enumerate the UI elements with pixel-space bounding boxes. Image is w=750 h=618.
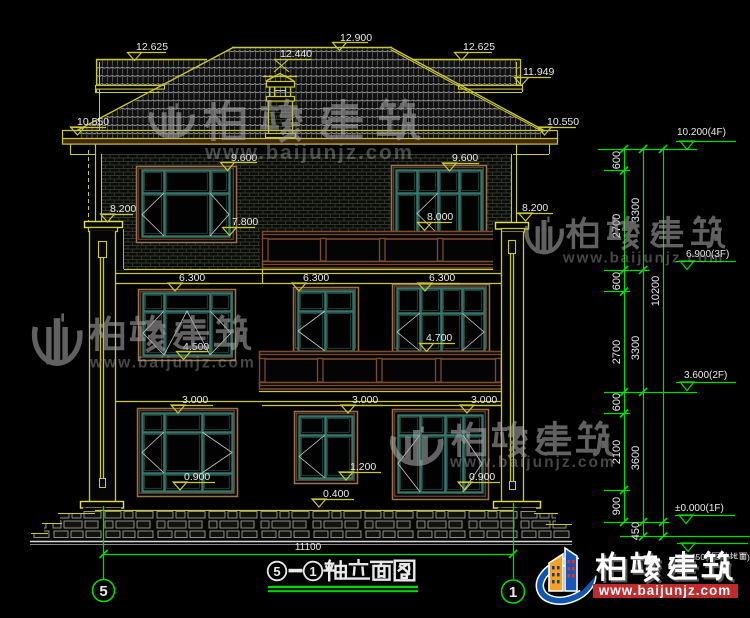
svg-text:8.200: 8.200: [110, 203, 136, 215]
svg-text:10200: 10200: [650, 276, 662, 307]
svg-text:10.200(4F): 10.200(4F): [677, 127, 726, 138]
svg-text:450: 450: [630, 522, 642, 540]
svg-text:5: 5: [273, 564, 280, 579]
svg-text:2700: 2700: [611, 340, 623, 364]
svg-text:12.625: 12.625: [463, 41, 495, 53]
svg-text:1: 1: [309, 564, 316, 579]
svg-text:10.550: 10.550: [77, 116, 109, 128]
svg-text:600: 600: [611, 272, 623, 290]
svg-text:www.baijunjz.com: www.baijunjz.com: [204, 141, 414, 164]
svg-text:3.600(2F): 3.600(2F): [684, 370, 727, 381]
svg-text:11100: 11100: [295, 542, 322, 553]
svg-text:9.600: 9.600: [452, 152, 478, 164]
svg-text:8.000: 8.000: [427, 211, 453, 223]
svg-text:0.900: 0.900: [469, 471, 495, 483]
svg-text:1: 1: [509, 584, 517, 601]
svg-text:900: 900: [611, 497, 623, 515]
svg-text:600: 600: [611, 393, 623, 411]
svg-text:6.300: 6.300: [179, 272, 205, 284]
svg-text:12.440: 12.440: [280, 48, 312, 60]
svg-text:10.550: 10.550: [547, 116, 579, 128]
svg-text:7.800: 7.800: [232, 216, 258, 228]
svg-text:±0.000(1F): ±0.000(1F): [675, 503, 724, 514]
svg-text:11.949: 11.949: [523, 66, 554, 78]
svg-text:1.200: 1.200: [350, 461, 376, 473]
svg-text:0.400: 0.400: [323, 488, 349, 500]
svg-text:5: 5: [99, 583, 107, 600]
svg-text:3300: 3300: [630, 336, 642, 360]
svg-text:8.200: 8.200: [522, 202, 548, 214]
svg-text:3.000: 3.000: [352, 394, 378, 406]
svg-text:3300: 3300: [630, 198, 642, 222]
svg-text:6.300: 6.300: [429, 272, 455, 284]
svg-text:12.625: 12.625: [136, 41, 168, 53]
svg-text:www.baijunjz.com: www.baijunjz.com: [449, 454, 616, 471]
svg-text:4.700: 4.700: [426, 332, 452, 344]
svg-text:www.baijunjz.com: www.baijunjz.com: [598, 583, 732, 598]
svg-text:www.baijunjz.com: www.baijunjz.com: [562, 250, 724, 267]
svg-text:6.300: 6.300: [303, 272, 329, 284]
svg-text:3.000: 3.000: [471, 394, 497, 406]
svg-text:3.000: 3.000: [182, 394, 208, 406]
svg-text:0.900: 0.900: [184, 471, 210, 483]
svg-text:www.baijunjz.com: www.baijunjz.com: [89, 355, 256, 372]
svg-text:3600: 3600: [630, 446, 642, 470]
svg-text:600: 600: [611, 151, 623, 169]
